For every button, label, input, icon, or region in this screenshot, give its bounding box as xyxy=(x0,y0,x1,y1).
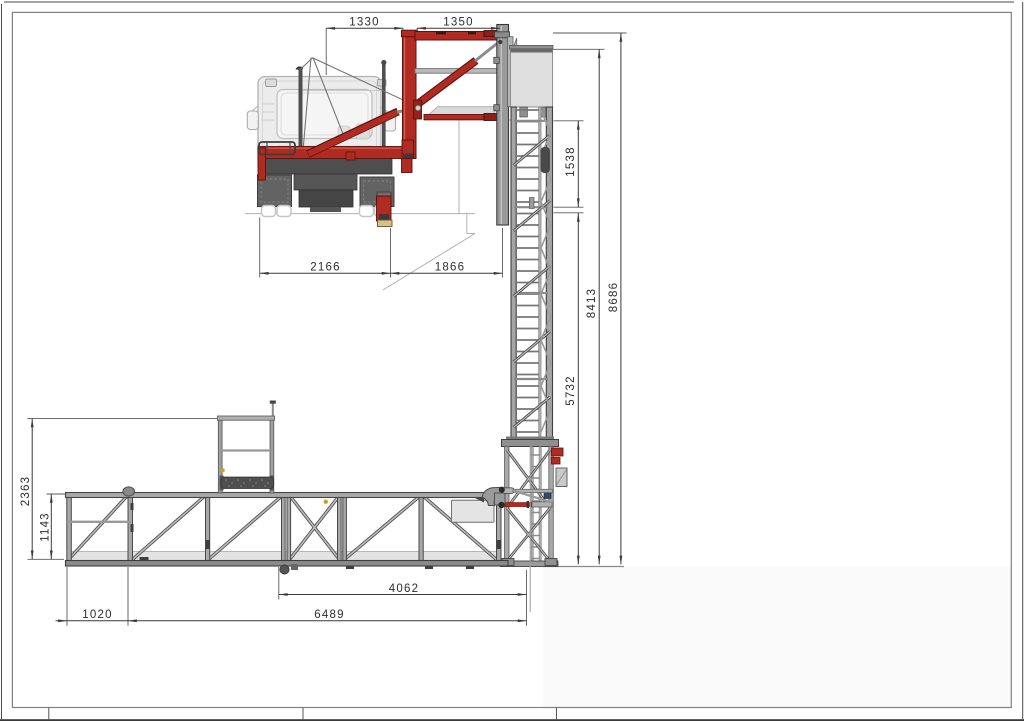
svg-text:5732: 5732 xyxy=(565,375,577,405)
svg-text:8413: 8413 xyxy=(586,288,598,318)
svg-text:1020: 1020 xyxy=(82,609,112,621)
svg-text:6489: 6489 xyxy=(314,609,344,621)
svg-text:1866: 1866 xyxy=(435,262,465,274)
svg-text:1330: 1330 xyxy=(349,17,379,29)
svg-text:1143: 1143 xyxy=(40,512,52,542)
svg-text:2166: 2166 xyxy=(310,262,340,274)
svg-text:1350: 1350 xyxy=(443,17,473,29)
svg-text:4062: 4062 xyxy=(389,583,419,595)
svg-text:8686: 8686 xyxy=(608,282,620,312)
svg-text:1538: 1538 xyxy=(565,146,577,176)
svg-text:2363: 2363 xyxy=(20,476,32,506)
